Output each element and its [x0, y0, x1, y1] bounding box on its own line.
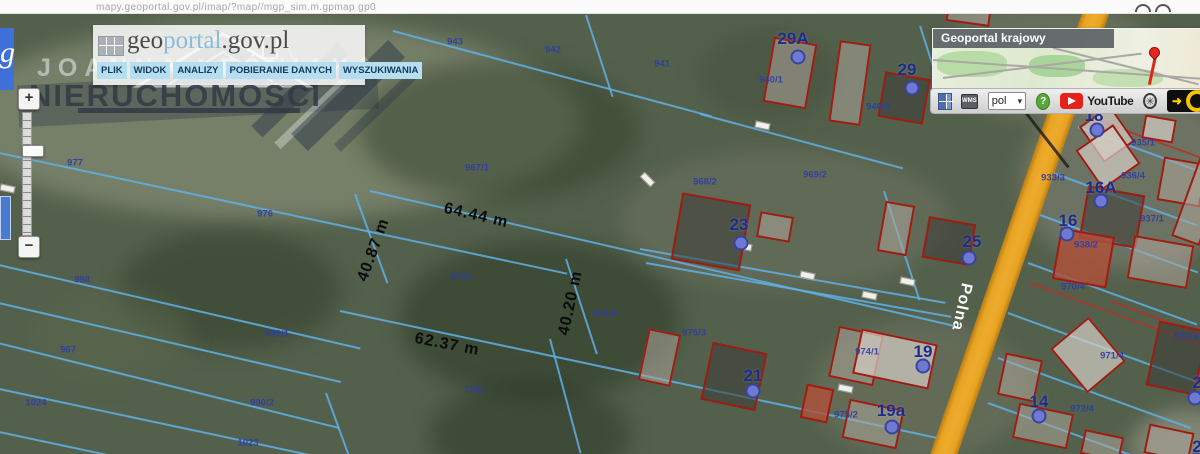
parcel-number: 936/4: [1121, 171, 1145, 182]
parcel-number: 990/2: [250, 398, 274, 409]
parcel-number: 977: [67, 158, 83, 169]
road-mark: [861, 291, 877, 301]
building-outline: [1080, 429, 1124, 454]
zoom-out-button[interactable]: −: [18, 236, 40, 258]
parcel-number: 998: [74, 275, 90, 286]
youtube-label: YouTube: [1087, 94, 1133, 108]
parcel-number: 975/4: [592, 309, 616, 320]
parcel-number: 971/4: [1100, 351, 1124, 362]
external-link-button[interactable]: ➜: [1167, 90, 1200, 112]
zoom-in-button[interactable]: +: [18, 88, 40, 110]
parcel-number: 1024: [25, 398, 46, 409]
address-marker[interactable]: [916, 359, 931, 374]
address-marker[interactable]: [746, 384, 761, 399]
overview-panel-title: Geoportal krajowy: [933, 29, 1114, 48]
layers-grid-icon[interactable]: [939, 94, 951, 109]
parcel-number: 942: [545, 45, 561, 56]
parcel-number: 1001: [464, 385, 485, 396]
browser-profile-icon[interactable]: [1155, 4, 1171, 12]
parcel-number: 1023: [237, 438, 258, 449]
browser-address-bar[interactable]: mapy.geoportal.gov.pl/imap/?map//mgp_sim…: [0, 0, 1200, 14]
address-marker[interactable]: [905, 81, 920, 96]
parcel-number: 937/1: [1140, 214, 1164, 225]
address-number: 29: [898, 60, 917, 80]
parcel-number: 941: [654, 59, 670, 70]
overview-location-marker: [1147, 45, 1163, 61]
menu-item-plik[interactable]: PLIK: [97, 62, 127, 79]
parcel-number: 968/2: [693, 177, 717, 188]
parcel-number: 970/4: [1061, 282, 1085, 293]
address-number: 2: [1192, 437, 1200, 454]
parcel-number: 943: [447, 37, 463, 48]
parcel-number: 967/1: [465, 163, 489, 174]
parcel-number: 975/1: [450, 272, 474, 283]
language-select[interactable]: pol ▾: [988, 92, 1027, 110]
menu-item-pobieranie-danych[interactable]: POBIERANIE DANYCH: [226, 62, 336, 79]
logo-gov: .gov.pl: [221, 27, 289, 54]
road-mark: [0, 184, 16, 194]
parcel-number: 974/1: [855, 347, 879, 358]
menu-item-wyszukiwania[interactable]: WYSZUKIWANIA: [339, 62, 422, 79]
arrow-icon: ➜: [1172, 94, 1182, 108]
address-marker[interactable]: [1032, 409, 1047, 424]
window-grid-icon: [99, 37, 123, 55]
zoom-slider-track[interactable]: [22, 112, 32, 236]
geoportal-map-view: 943942941940/1940/3977976967/1968/2969/2…: [0, 0, 1200, 454]
ring-icon: [1186, 90, 1200, 112]
building-outline: [756, 211, 794, 243]
address-marker[interactable]: [734, 236, 749, 251]
wms-icon[interactable]: WMS: [961, 94, 978, 109]
browser-download-icon[interactable]: [1135, 4, 1151, 12]
menu-item-widok[interactable]: WIDOK: [130, 62, 171, 79]
language-value: pol: [992, 95, 1007, 107]
building-outline: [828, 40, 871, 126]
parcel-number: 938/2: [1074, 240, 1098, 251]
street-name-label: Polna: [947, 281, 975, 332]
left-panel-strip: g: [0, 28, 14, 90]
address-number: 19a: [877, 401, 905, 421]
measurement-label: 40.87 m: [354, 216, 393, 284]
address-number: 29A: [777, 29, 808, 49]
logo-portal: portal: [163, 27, 221, 54]
parcel-number: 967: [60, 345, 76, 356]
address-number: 25: [963, 232, 982, 252]
address-marker[interactable]: [791, 50, 806, 65]
parcel-number: 970/5: [1174, 332, 1198, 343]
main-menu: PLIKWIDOKANALIZYPOBIERANIE DANYCHWYSZUKI…: [97, 62, 422, 79]
address-marker[interactable]: [1090, 123, 1105, 138]
measurement-label: 64.44 m: [442, 200, 510, 232]
parcel-number: 976: [257, 209, 273, 220]
youtube-play-icon: [1060, 93, 1083, 109]
parcel-number: 940/3: [866, 102, 890, 113]
parcel-number: 975/2: [834, 410, 858, 421]
address-marker[interactable]: [1188, 391, 1200, 406]
zoom-slider-handle[interactable]: [22, 145, 44, 157]
address-number: 23: [730, 215, 749, 235]
parcel-number: 975/3: [682, 328, 706, 339]
address-marker[interactable]: [1060, 227, 1075, 242]
chevron-down-icon: ▾: [1018, 96, 1023, 107]
parcel-line: [0, 385, 455, 454]
address-marker[interactable]: [962, 251, 977, 266]
parcel-number: 935/1: [1131, 138, 1155, 149]
map-toolbar: WMS pol ▾ ? YouTube ✳ ➜: [930, 88, 1200, 114]
parcel-number: 933/3: [1041, 173, 1065, 184]
geoportal-header-box: geoportal.gov.pl PLIKWIDOKANALIZYPOBIERA…: [93, 25, 365, 85]
menu-item-analizy[interactable]: ANALIZY: [173, 62, 222, 79]
parcel-number: 972/4: [1070, 404, 1094, 415]
left-panel-strip-lower: [0, 196, 11, 240]
youtube-button[interactable]: YouTube: [1060, 93, 1133, 109]
overview-map-panel[interactable]: Geoportal krajowy: [932, 28, 1200, 90]
address-marker[interactable]: [885, 420, 900, 435]
parcel-line: [325, 393, 352, 454]
parcel-number: 969/2: [803, 170, 827, 181]
parcel-number: 999/1: [265, 329, 289, 340]
settings-wheel-icon[interactable]: ✳: [1143, 93, 1157, 109]
address-marker[interactable]: [1094, 194, 1109, 209]
geoportal-logo[interactable]: geoportal.gov.pl: [127, 27, 289, 55]
building-outline: [1127, 235, 1195, 289]
parcel-number: 940/1: [759, 75, 783, 86]
browser-url-text: mapy.geoportal.gov.pl/imap/?map//mgp_sim…: [96, 2, 376, 13]
help-button[interactable]: ?: [1036, 93, 1050, 110]
logo-geo: geo: [127, 27, 163, 54]
